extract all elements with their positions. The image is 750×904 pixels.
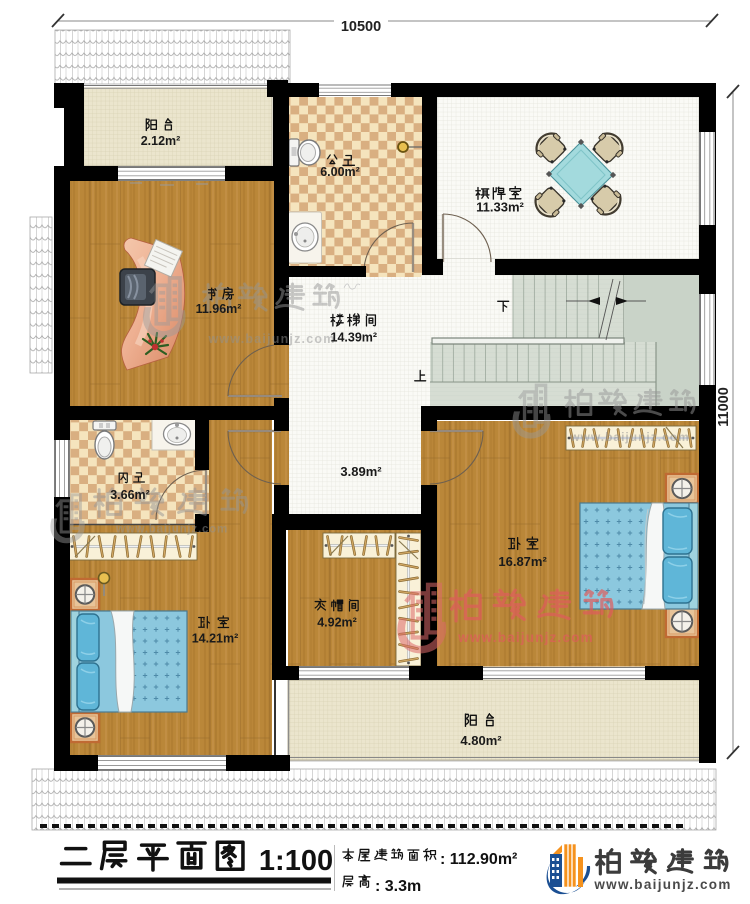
svg-text:16.87m²: 16.87m² xyxy=(498,554,547,569)
svg-text:: 3.3m: : 3.3m xyxy=(375,878,421,895)
svg-text:3.66m²: 3.66m² xyxy=(110,488,150,502)
svg-text:11.33m²: 11.33m² xyxy=(476,200,524,215)
svg-text:www.baijunjz.com: www.baijunjz.com xyxy=(569,430,690,444)
svg-text:4.80m²: 4.80m² xyxy=(460,733,502,748)
svg-text:10500: 10500 xyxy=(341,19,381,35)
svg-text:11000: 11000 xyxy=(716,387,732,427)
svg-text:www.baijunjz.com: www.baijunjz.com xyxy=(457,630,594,645)
svg-text:www.baijunjz.com: www.baijunjz.com xyxy=(207,332,335,346)
svg-text:14.39m²: 14.39m² xyxy=(331,331,378,345)
svg-text:www.baijunjz.com: www.baijunjz.com xyxy=(593,877,731,892)
svg-text:www.baijunjz.com: www.baijunjz.com xyxy=(115,524,228,536)
svg-text:2.12m²: 2.12m² xyxy=(141,134,181,148)
svg-text:3.89m²: 3.89m² xyxy=(340,464,382,479)
svg-text:: 112.90m²: : 112.90m² xyxy=(440,851,517,868)
svg-text:6.00m²: 6.00m² xyxy=(320,165,360,179)
svg-text:14.21m²: 14.21m² xyxy=(192,632,239,646)
svg-text:4.92m²: 4.92m² xyxy=(317,616,357,630)
svg-text:1:100: 1:100 xyxy=(259,845,333,877)
svg-text:11.96m²: 11.96m² xyxy=(196,302,242,316)
